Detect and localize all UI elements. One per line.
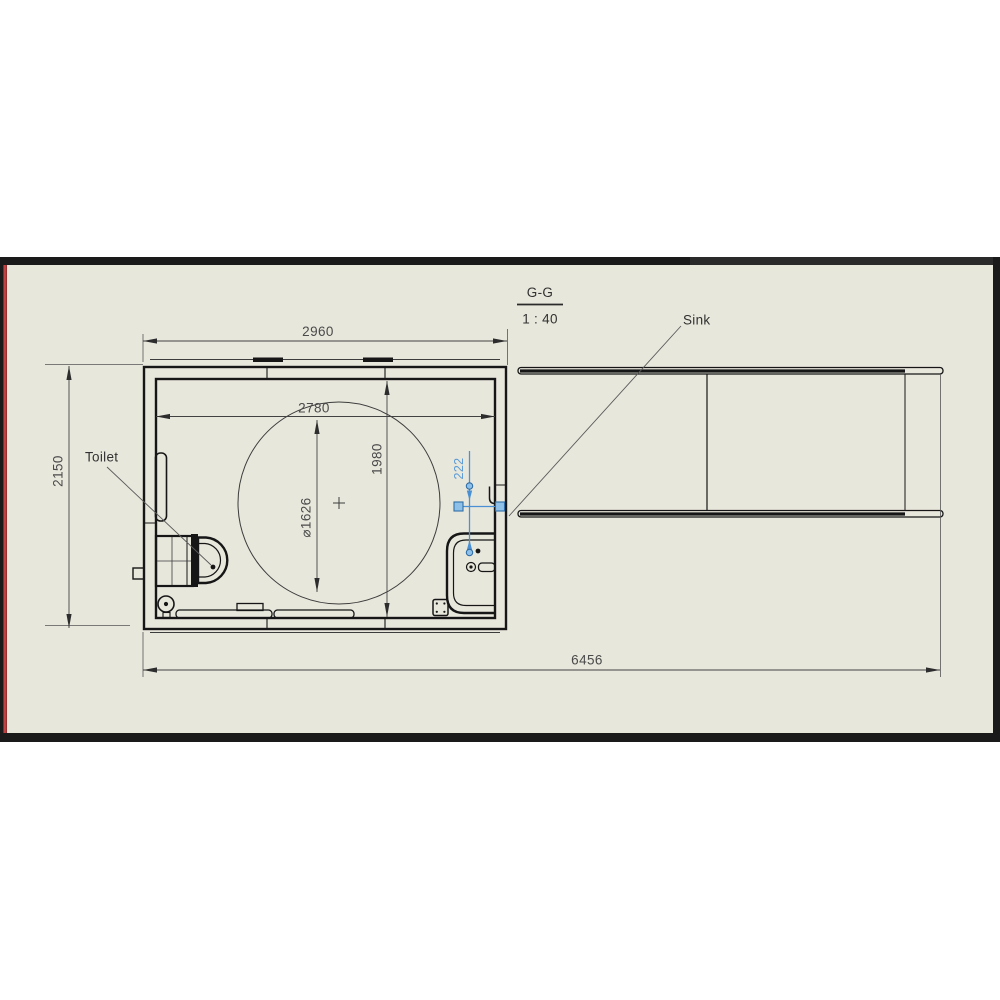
circle-center-mark bbox=[333, 497, 345, 509]
dim-arrow-down bbox=[314, 578, 319, 592]
toilet-centerlines bbox=[157, 537, 193, 585]
grip-point-top[interactable] bbox=[466, 483, 472, 489]
section-title: G-G 1 : 40 bbox=[517, 285, 563, 327]
dim-arrow-left bbox=[143, 338, 157, 343]
cad-drawing: 2960 2780 1980 ⌀1626 bbox=[0, 0, 1000, 1000]
dim-extension-lines bbox=[45, 365, 143, 626]
turning-circle bbox=[238, 402, 440, 604]
selected-dim-arrow-down bbox=[467, 491, 472, 501]
dim-arrow-up bbox=[384, 381, 389, 395]
dim-arrow-down bbox=[384, 603, 389, 617]
dim-arrow-right bbox=[481, 414, 495, 419]
sink-drain-center bbox=[469, 565, 472, 568]
threshold-strip-right bbox=[274, 610, 354, 618]
dim-inner-depth-text: 1980 bbox=[370, 443, 385, 475]
dim-arrow-up bbox=[66, 366, 71, 380]
dim-overall-depth-text: 2150 bbox=[51, 455, 66, 487]
side-extension bbox=[518, 368, 943, 518]
selected-dim-arrow-up bbox=[467, 540, 472, 550]
dim-arrow-left bbox=[143, 667, 157, 672]
roof-clip-right bbox=[363, 358, 393, 363]
wall-pipe-stub bbox=[133, 568, 144, 579]
sink-faucet bbox=[479, 563, 496, 572]
dim-circle-diameter-text: ⌀1626 bbox=[299, 497, 314, 537]
callouts: Toilet Sink bbox=[85, 313, 710, 566]
side-wall-joints bbox=[144, 485, 506, 523]
dim-overall-length: 6456 bbox=[143, 374, 941, 677]
toilet-leader-line bbox=[107, 467, 211, 565]
dim-inner-width: 2780 bbox=[156, 401, 495, 420]
grip-handle-left[interactable] bbox=[454, 502, 463, 511]
dim-circle-diameter: ⌀1626 bbox=[299, 420, 320, 592]
dim-overall-length-text: 6456 bbox=[571, 653, 603, 668]
toilet-callout: Toilet bbox=[85, 450, 118, 465]
sink-tap-point bbox=[476, 549, 481, 554]
dim-sink-offset-text[interactable]: 222 bbox=[452, 457, 466, 479]
floor-drain-center bbox=[164, 602, 168, 606]
dim-overall-depth: 2150 bbox=[45, 365, 143, 629]
page: 2960 2780 1980 ⌀1626 bbox=[0, 0, 1000, 1000]
sink-outline bbox=[447, 534, 496, 614]
dim-arrow-left bbox=[156, 414, 170, 419]
dim-arrow-right bbox=[493, 338, 507, 343]
dim-arrow-right bbox=[926, 667, 940, 672]
toilet-flush-point bbox=[211, 565, 216, 570]
grip-handle-right[interactable] bbox=[496, 502, 505, 511]
roof-clip-left bbox=[253, 358, 283, 363]
scale-label: 1 : 40 bbox=[522, 312, 558, 327]
threshold-strip-left bbox=[176, 610, 272, 618]
sink-callout: Sink bbox=[683, 313, 710, 328]
sink-leader-line bbox=[509, 326, 681, 516]
dim-overall-width: 2960 bbox=[143, 324, 508, 365]
grip-point-bottom[interactable] bbox=[466, 549, 472, 555]
dim-inner-width-text: 2780 bbox=[298, 401, 330, 416]
square-drain-screw bbox=[436, 602, 438, 604]
sink-basin-inner bbox=[454, 540, 496, 606]
dim-extension-lines bbox=[143, 374, 941, 677]
floor-drain-outlet bbox=[163, 613, 170, 618]
room-walls bbox=[133, 358, 506, 633]
toilet-fixture bbox=[156, 534, 227, 587]
square-drain-screw bbox=[443, 611, 445, 613]
square-drain-screw bbox=[436, 611, 438, 613]
section-view-label: G-G bbox=[527, 285, 553, 300]
square-drain-icon bbox=[433, 600, 448, 616]
toilet-bowl-inner bbox=[198, 544, 221, 578]
square-drain-screw bbox=[443, 602, 445, 604]
dim-overall-width-text: 2960 bbox=[302, 324, 334, 339]
dim-arrow-up bbox=[314, 420, 319, 434]
toilet-bowl-outline bbox=[198, 538, 227, 584]
